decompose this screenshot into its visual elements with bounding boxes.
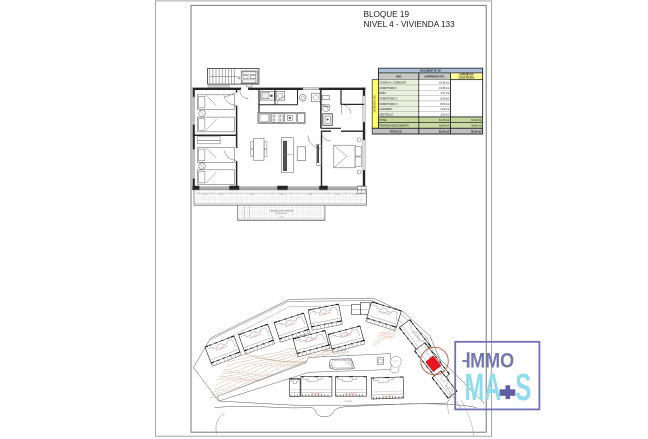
svg-text:2,80 m2: 2,80 m2	[440, 108, 450, 111]
svg-text:2,10: 2,10	[250, 194, 254, 196]
svg-text:CALLE A: CALLE A	[344, 400, 352, 403]
svg-text:LAVADERO: LAVADERO	[379, 108, 392, 111]
svg-text:MA: MA	[465, 367, 502, 409]
svg-text:DORMITORIO 1: DORMITORIO 1	[379, 87, 398, 90]
svg-text:2,10: 2,10	[219, 194, 223, 196]
svg-text:NIVEL 4 - VIVIENDA 133: NIVEL 4 - VIVIENDA 133	[364, 20, 456, 29]
svg-text:DORMITORIO 2: DORMITORIO 2	[379, 98, 398, 101]
svg-text:80,34 m2: 80,34 m2	[471, 131, 482, 134]
svg-text:DORMITORIO 3: DORMITORIO 3	[379, 103, 398, 106]
svg-text:1,10: 1,10	[203, 194, 207, 196]
svg-text:SUPERFICIE ÚTIL: SUPERFICIE ÚTIL	[424, 75, 445, 78]
svg-text:8,60 m2: 8,60 m2	[440, 103, 450, 106]
svg-text:TERRAZA DESCUBIERTA: TERRAZA DESCUBIERTA	[269, 210, 293, 213]
svg-text:BLOQUE 2: BLOQUE 2	[383, 396, 394, 398]
svg-text:2,50 m2: 2,50 m2	[440, 114, 450, 117]
svg-text:COCINA-S. COMEDOR: COCINA-S. COMEDOR	[379, 82, 406, 85]
svg-text:3,47 m2: 3,47 m2	[440, 92, 450, 95]
svg-text:7,38: 7,38	[279, 194, 283, 196]
svg-text:TERRAZA DESCUBIERTA: TERRAZA DESCUBIERTA	[379, 125, 409, 128]
svg-text:TOTAL: TOTAL	[379, 119, 387, 122]
svg-text:23,38 m2: 23,38 m2	[439, 82, 450, 85]
svg-text:TOTALES: TOTALES	[390, 130, 402, 134]
svg-text:61,24 m2: 61,24 m2	[471, 119, 482, 122]
svg-text:S: S	[515, 367, 531, 409]
svg-text:2,05: 2,05	[335, 194, 339, 196]
svg-text:BLOQUE 19: BLOQUE 19	[364, 10, 410, 19]
svg-text:8,50 m2: 8,50 m2	[440, 98, 450, 101]
svg-text:VESTIBULO: VESTIBULO	[379, 114, 393, 117]
svg-text:18,60 m2: 18,60 m2	[471, 125, 482, 128]
svg-text:2,05: 2,05	[308, 194, 312, 196]
svg-text:CONSTRUIDA: CONSTRUIDA	[459, 77, 475, 80]
svg-text:10,88 m2: 10,88 m2	[439, 87, 450, 90]
svg-text:18,60 m2: 18,60 m2	[439, 125, 450, 128]
svg-text:1,10: 1,10	[354, 194, 358, 196]
svg-text:BLOQUE B-19: BLOQUE B-19	[420, 69, 441, 73]
svg-text:BLOQUE 3: BLOQUE 3	[346, 394, 357, 396]
svg-text:80,33 m2: 80,33 m2	[439, 131, 450, 134]
svg-text:VIVIENDA 133: VIVIENDA 133	[372, 95, 376, 113]
svg-text:8,10: 8,10	[280, 217, 284, 219]
svg-text:USO: USO	[396, 74, 402, 78]
svg-text:61,73 m2: 61,73 m2	[439, 119, 450, 122]
svg-text:BLOQUE 4: BLOQUE 4	[311, 394, 322, 396]
svg-text:BAÑO: BAÑO	[379, 92, 386, 95]
svg-text:S: 18,60 m2: S: 18,60 m2	[276, 213, 288, 215]
